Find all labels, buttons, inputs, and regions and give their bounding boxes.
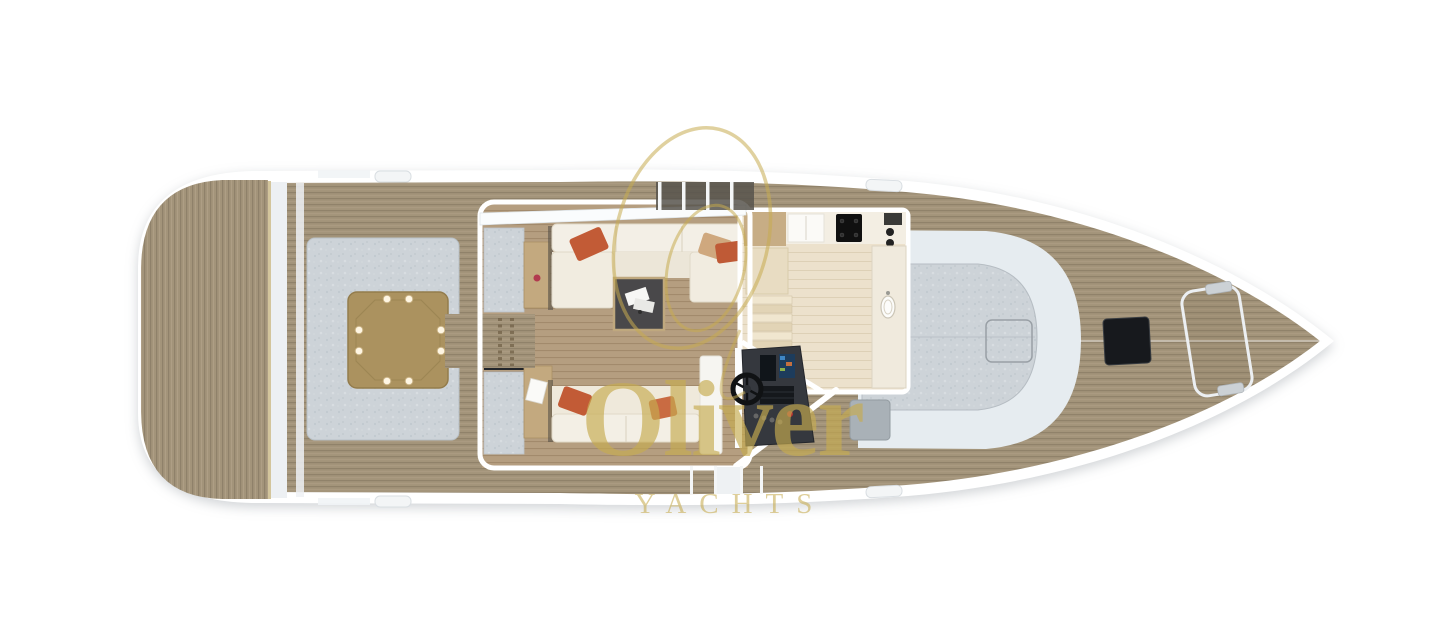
yacht-deck-plan: Oliver YACHTS: [0, 0, 1440, 636]
chaise-left: [552, 252, 614, 308]
decor-item: [534, 275, 541, 282]
platform-gap: [271, 182, 287, 498]
aft-bench-port: [484, 228, 524, 312]
deck-plan-canvas: Oliver YACHTS: [0, 0, 1440, 636]
cleat-recess: [866, 485, 903, 498]
cooktop: [836, 214, 862, 242]
foredeck-hatch: [1103, 317, 1151, 365]
cleat-recess: [866, 179, 903, 192]
aft-step-bottom: [318, 498, 370, 505]
cleat-recess: [375, 496, 411, 507]
platform-trim-line: [268, 181, 271, 499]
cleat-recess: [375, 171, 411, 182]
watermark-brand: Oliver: [581, 360, 863, 479]
cockpit-table: [348, 292, 448, 388]
aft-bench-starboard: [484, 372, 524, 454]
swim-platform: [141, 180, 304, 499]
transom-step: [296, 183, 304, 497]
galley-fixture: [886, 228, 894, 236]
cockpit-walkway: [445, 314, 535, 368]
aft-cockpit: [307, 238, 459, 440]
watermark-tagline: YACHTS: [635, 488, 826, 520]
galley-appliance: [884, 213, 902, 225]
aft-step-top: [318, 170, 370, 178]
faucet: [886, 291, 890, 295]
